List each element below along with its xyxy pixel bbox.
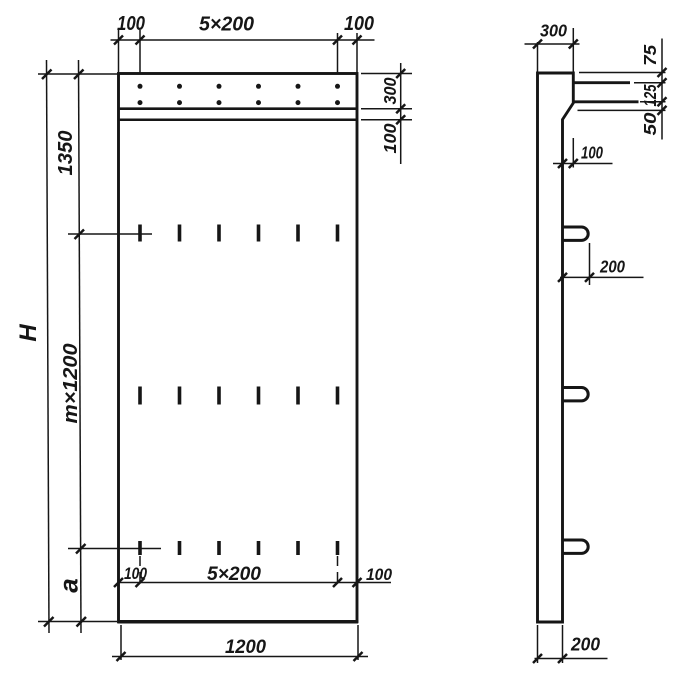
- svg-text:300: 300: [540, 21, 567, 41]
- svg-text:100: 100: [581, 143, 603, 163]
- svg-text:1200: 1200: [225, 637, 266, 658]
- svg-text:a: a: [54, 578, 84, 592]
- svg-text:300: 300: [380, 77, 400, 104]
- svg-text:100: 100: [124, 564, 147, 583]
- svg-text:75: 75: [640, 45, 660, 66]
- svg-text:100: 100: [380, 123, 400, 153]
- svg-text:m×1200: m×1200: [60, 344, 82, 424]
- svg-text:200: 200: [599, 257, 625, 277]
- svg-text:100: 100: [344, 13, 374, 35]
- svg-text:100: 100: [366, 565, 392, 584]
- svg-text:5×200: 5×200: [207, 564, 261, 585]
- svg-text:5×200: 5×200: [199, 14, 254, 36]
- svg-text:200: 200: [570, 635, 600, 655]
- svg-text:100: 100: [117, 13, 145, 35]
- svg-text:50: 50: [640, 112, 660, 135]
- svg-text:1350: 1350: [55, 131, 77, 176]
- svg-text:H: H: [15, 324, 42, 342]
- svg-text:125: 125: [640, 84, 660, 106]
